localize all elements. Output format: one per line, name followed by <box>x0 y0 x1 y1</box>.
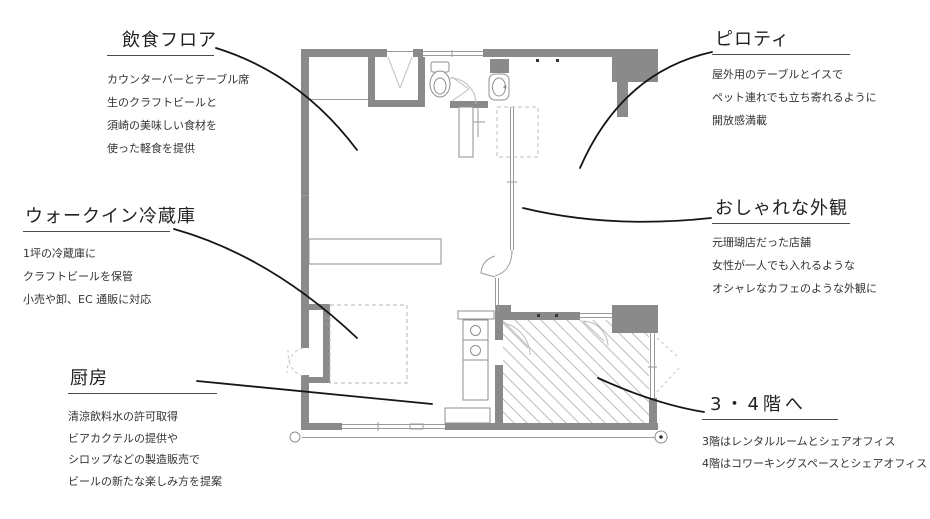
stair-right-door-dashed <box>657 338 679 392</box>
annotation-title: 厨房 <box>70 364 108 393</box>
annotation-title: ピロティ <box>715 25 790 54</box>
wall-anchor-dots <box>536 59 559 317</box>
top-window-band <box>387 50 483 57</box>
hand-sink-fixture <box>489 74 509 100</box>
annotation-line: 生のクラフトビールと <box>107 91 214 114</box>
annotation-line: ビアカクテルの提供や <box>68 428 217 450</box>
annotation-title: 3・4階へ <box>710 390 807 419</box>
toilet-fixture <box>430 62 450 97</box>
stair-right-glass <box>648 333 657 398</box>
annotation-line: クラフトビールを保管 <box>23 265 170 288</box>
annotation-line: 3階はレンタルルームとシェアオフィス <box>702 431 838 453</box>
kitchen-base-cabinet <box>445 408 490 423</box>
stair-window-band <box>580 314 612 318</box>
side-exit-door-dashed <box>287 348 303 376</box>
leader-facade <box>523 208 711 222</box>
room-divider-line <box>301 100 368 196</box>
annotation-line: 元珊瑚店だった店舗 <box>712 231 850 254</box>
annotation-dining-floor: 飲食フロア カウンターバーとテーブル席 生のクラフトビールと 須崎の美味しい食材… <box>107 26 214 160</box>
kitchen-sink-counter <box>445 311 494 423</box>
annotation-line: 使った軽食を提供 <box>107 137 214 160</box>
annotation-line: 開放感満載 <box>712 109 850 132</box>
annotation-line: 小売や卸、EC 通販に対応 <box>23 288 170 311</box>
annotation-title: ウォークイン冷蔵庫 <box>25 202 196 231</box>
annotation-title: おしゃれな外観 <box>715 194 848 223</box>
entry-mat-outline <box>497 107 538 157</box>
annotation-line: 女性が一人でも入れるような <box>712 254 850 277</box>
stair-column <box>612 305 658 333</box>
annotation-piloti: ピロティ 屋外用のテーブルとイスで ペット連れでも立ち寄れるように 開放感満載 <box>712 25 850 132</box>
floor-plan-page: { "page": { "background": "#ffffff" }, "… <box>0 0 930 519</box>
annotation-title: 飲食フロア <box>122 26 217 55</box>
storefront-glass-wall <box>507 107 517 250</box>
annotation-line: 4階はコワーキングスペースとシェアオフィス <box>702 453 838 475</box>
staircase-hatched-area <box>503 320 649 423</box>
toilet-door <box>450 77 476 104</box>
walk-in-fridge-outline <box>330 305 407 383</box>
corner-marker-left <box>290 432 300 442</box>
annotation-line: 須崎の美味しい食材を <box>107 114 214 137</box>
double-door-v <box>388 57 412 88</box>
leader-kitchen <box>197 381 432 404</box>
annotation-line: オシャレなカフェのような外観に <box>712 277 850 300</box>
annotation-line: ペット連れでも立ち寄れるように <box>712 86 850 109</box>
dining-counter <box>309 239 441 264</box>
annotation-kitchen: 厨房 清涼飲料水の許可取得 ビアカクテルの提供や シロップなどの製造販売で ビー… <box>68 364 217 492</box>
annotation-line: 屋外用のテーブルとイスで <box>712 63 850 86</box>
entry-shelf <box>459 107 473 157</box>
annotation-line: シロップなどの製造販売で <box>68 449 217 471</box>
annotation-stairs-3-4f: 3・4階へ 3階はレンタルルームとシェアオフィス 4階はコワーキングスペースとシ… <box>702 390 838 474</box>
annotation-line: ビールの新たな楽しみ方を提案 <box>68 471 217 493</box>
annotation-line: 1坪の冷蔵庫に <box>23 242 170 265</box>
annotation-line: カウンターバーとテーブル席 <box>107 68 214 91</box>
bottom-window-band <box>342 422 445 431</box>
annotation-stylish-facade: おしゃれな外観 元珊瑚店だった店舗 女性が一人でも入れるような オシャレなカフェ… <box>712 194 850 300</box>
annotation-line: 清涼飲料水の許可取得 <box>68 406 217 428</box>
annotation-walkin-fridge: ウォークイン冷蔵庫 1坪の冷蔵庫に クラフトビールを保管 小売や卸、EC 通販に… <box>23 202 170 311</box>
entry-door <box>481 250 512 277</box>
